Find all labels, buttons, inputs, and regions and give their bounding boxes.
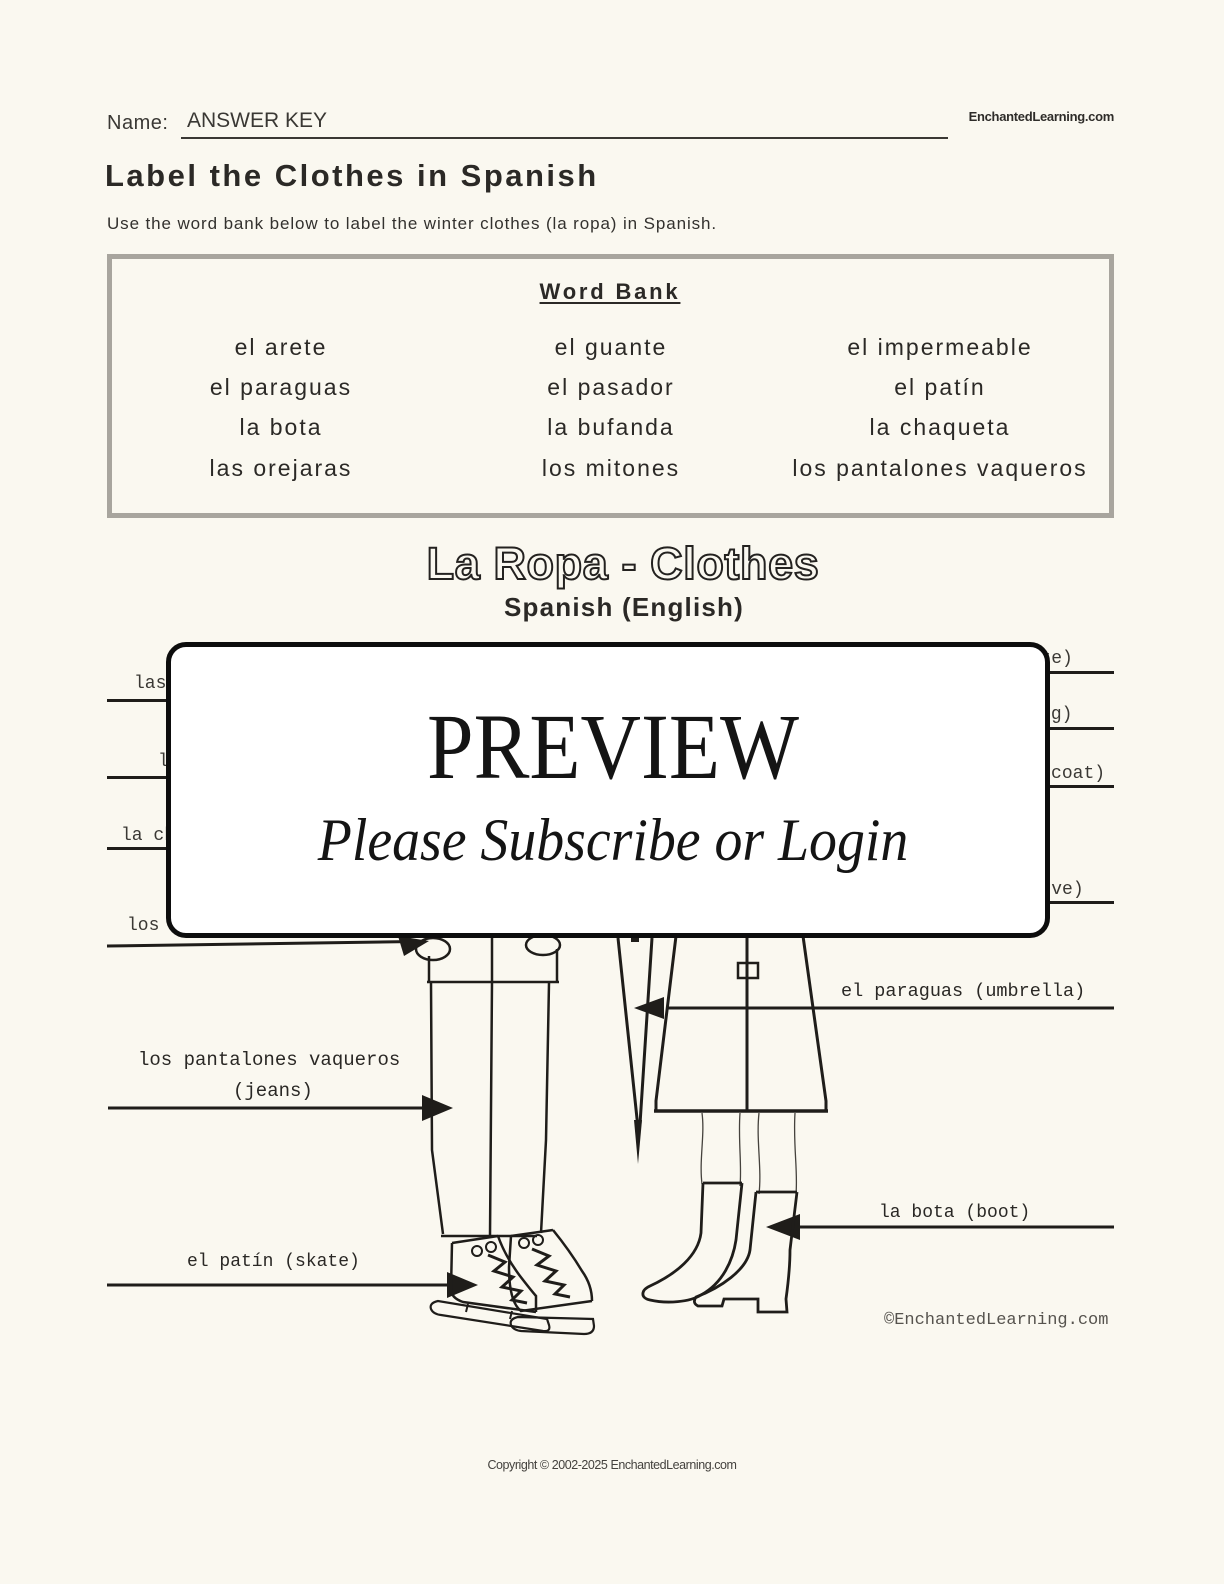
svg-text:el paraguas (umbrella): el paraguas (umbrella) (841, 981, 1085, 1002)
svg-text:©EnchantedLearning.com: ©EnchantedLearning.com (884, 1311, 1108, 1330)
svg-text:la bota (boot): la bota (boot) (879, 1203, 1030, 1223)
svg-text:los pantalones vaqueros: los pantalones vaqueros (138, 1049, 400, 1071)
svg-text:el patín (skate): el patín (skate) (187, 1252, 360, 1272)
svg-text:(jeans): (jeans) (233, 1080, 313, 1102)
